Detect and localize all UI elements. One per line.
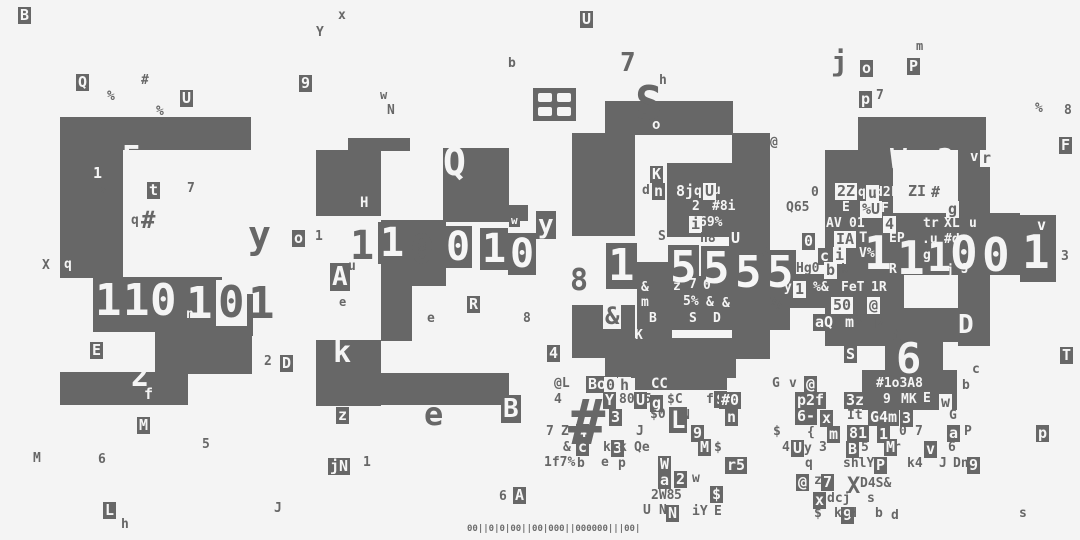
noise-char: 2	[692, 200, 700, 213]
noise-char: u	[713, 184, 721, 197]
big-digit-block-5	[155, 330, 252, 374]
noise-char: K	[650, 166, 663, 183]
noise-char: 01	[849, 217, 865, 230]
noise-char: z	[336, 407, 349, 424]
noise-char: &	[641, 281, 649, 294]
noise-char: 6	[499, 490, 507, 503]
noise-char: #	[762, 247, 770, 260]
noise-char: d	[642, 184, 650, 197]
noise-char: 2W8	[651, 489, 674, 502]
noise-char: j	[831, 48, 848, 76]
noise-char: q	[858, 186, 866, 199]
noise-char: It	[847, 409, 863, 422]
big-digit-block-2	[316, 150, 381, 216]
noise-char: tr	[923, 217, 939, 230]
noise-char: FeT	[841, 281, 864, 294]
noise-char: w	[509, 214, 520, 227]
noise-char: 9	[299, 75, 312, 92]
noise-char: o	[292, 230, 305, 247]
noise-char: Q	[76, 74, 89, 91]
noise-char: k	[841, 263, 849, 276]
big-digit-block-2	[316, 373, 509, 405]
noise-char: 5%	[683, 295, 699, 308]
noise-char: J	[274, 502, 282, 515]
noise-char: r	[893, 441, 901, 454]
noise-char: N	[682, 409, 690, 422]
big-digit-block-8	[732, 133, 770, 243]
noise-char: 1	[248, 282, 275, 326]
noise-char: 0	[150, 279, 177, 323]
window-pane	[538, 107, 552, 116]
noise-char: 8	[1064, 104, 1072, 117]
noise-char: E	[714, 505, 722, 518]
noise-char: U	[180, 90, 193, 107]
noise-char: 0	[216, 280, 247, 326]
noise-char: #8i	[712, 200, 735, 213]
noise-char: 3z	[844, 392, 866, 409]
noise-char: 2	[674, 471, 687, 488]
noise-char: p	[618, 457, 626, 470]
noise-char: w	[692, 472, 700, 485]
noise-char: y	[804, 442, 812, 455]
big-digit-block-5	[60, 117, 123, 278]
noise-char: A	[513, 487, 526, 504]
noise-char: W	[890, 145, 907, 173]
noise-char: b	[508, 57, 516, 70]
noise-char: m	[827, 426, 840, 443]
noise-char: e	[427, 312, 435, 325]
noise-char: m	[916, 40, 923, 52]
noise-char: S	[844, 346, 857, 363]
noise-char: A	[330, 263, 350, 291]
noise-char: G4m	[868, 409, 899, 426]
noise-char: 3	[937, 145, 954, 173]
noise-char: F	[122, 143, 140, 173]
noise-char: 4	[782, 441, 790, 454]
noise-char: $	[773, 425, 781, 438]
noise-char: y	[536, 211, 556, 239]
noise-char: G	[949, 409, 957, 422]
noise-char: #	[141, 208, 155, 232]
noise-char: p	[859, 91, 872, 108]
noise-char: h	[121, 518, 129, 531]
noise-char: 0	[703, 279, 711, 292]
noise-char: s	[867, 492, 875, 505]
noise-char: $0	[650, 408, 666, 421]
noise-char: b	[824, 262, 837, 279]
noise-char: 80	[619, 393, 635, 406]
noise-char: c	[972, 363, 980, 376]
noise-char: G	[772, 377, 780, 390]
noise-char: 1	[927, 238, 951, 278]
big-digit-block-0	[858, 117, 986, 150]
noise-char: K	[635, 329, 643, 342]
noise-char: AV	[826, 217, 842, 230]
noise-char: E	[90, 342, 103, 359]
noise-char: 4	[547, 345, 560, 362]
noise-char: v	[970, 150, 978, 164]
noise-char: 1	[480, 228, 508, 270]
window-pane	[557, 93, 571, 102]
noise-char: 2	[264, 355, 272, 368]
noise-char: U	[643, 504, 651, 517]
noise-char: v	[924, 441, 937, 458]
noise-char: %	[107, 90, 115, 103]
noise-char: S	[658, 230, 666, 243]
noise-char: J	[939, 457, 947, 470]
noise-char: 69%	[699, 216, 722, 229]
noise-char: M	[137, 417, 150, 434]
noise-char: Y	[316, 26, 324, 39]
noise-char: 6	[896, 338, 921, 380]
noise-char: r	[980, 150, 993, 167]
noise-char: 4	[554, 393, 562, 406]
noise-char: f	[706, 393, 714, 406]
noise-char: 2Z	[835, 183, 857, 200]
noise-char: 9	[967, 457, 980, 474]
noise-char: 1	[939, 185, 947, 198]
noise-char: R	[467, 296, 480, 313]
noise-char: Q	[443, 143, 466, 181]
noise-char: 6	[854, 315, 862, 328]
noise-char: MK	[901, 393, 917, 406]
noise-char: t	[147, 182, 160, 199]
big-digit-block-8	[635, 372, 727, 390]
noise-char: N	[387, 104, 395, 117]
noise-char: P	[964, 425, 972, 438]
noise-char: 1	[606, 243, 637, 289]
noise-char: #0	[719, 392, 741, 409]
noise-char: 1	[897, 235, 925, 281]
noise-char: $C	[667, 393, 683, 406]
noise-char: n	[725, 409, 738, 426]
noise-char: @	[867, 297, 880, 314]
noise-char: 0	[410, 230, 434, 270]
noise-char: 0	[982, 232, 1010, 278]
noise-char: &	[603, 303, 621, 329]
noise-char: 7	[876, 89, 884, 102]
noise-char: k	[333, 338, 351, 368]
noise-char: 1	[95, 279, 122, 323]
noise-char: 5	[202, 438, 210, 451]
noise-char: CC	[651, 377, 668, 391]
noise-char: 3	[1061, 250, 1069, 263]
noise-char: aQ	[813, 314, 835, 331]
big-digit-block-8	[605, 101, 733, 135]
big-digit-block-8	[572, 133, 635, 236]
noise-char: 7	[821, 474, 834, 491]
noise-char: $	[714, 441, 722, 454]
noise-char: 5	[674, 489, 682, 502]
noise-char: @	[770, 136, 778, 149]
noise-char: S	[689, 312, 697, 325]
noise-char: F	[881, 202, 889, 215]
noise-char: a	[774, 299, 782, 312]
noise-char: z	[673, 280, 681, 293]
noise-char: M	[835, 314, 843, 327]
noise-char: f	[144, 387, 153, 402]
noise-char: Qe	[634, 441, 650, 454]
noise-char: 3	[819, 441, 827, 454]
noise-char: U	[729, 230, 742, 247]
window-pane	[557, 107, 571, 116]
noise-char: B	[501, 395, 521, 423]
noise-char: n	[186, 308, 194, 321]
noise-char: D	[958, 312, 974, 338]
noise-char: o	[860, 60, 873, 77]
noise-char: a	[658, 472, 671, 489]
noise-char: o	[652, 118, 660, 132]
noise-char: F	[1059, 137, 1072, 154]
noise-char: E	[842, 201, 850, 214]
noise-char: U	[791, 440, 804, 457]
noise-char: r5	[725, 457, 747, 474]
noise-char: y	[248, 216, 271, 254]
noise-char: Q65	[786, 201, 809, 214]
window-grid-icon	[533, 88, 576, 121]
captcha-noise-canvas: 00||0|0|00||00|000||000000|||00| BxYUQ#%…	[0, 0, 1080, 540]
noise-char: $	[814, 507, 822, 520]
noise-char: B	[18, 7, 31, 24]
noise-char: 9	[883, 393, 891, 406]
noise-char: 0	[950, 230, 978, 276]
noise-char: k	[619, 441, 627, 454]
noise-char: jN	[328, 458, 350, 475]
noise-char: @	[796, 474, 809, 491]
noise-char: 0	[802, 233, 815, 250]
noise-char: #	[568, 392, 605, 454]
noise-char: 1	[91, 165, 104, 182]
noise-char: E	[923, 392, 931, 405]
noise-char: &	[722, 297, 730, 310]
noise-char: 1	[350, 226, 374, 266]
noise-char: 0	[899, 425, 907, 438]
noise-char: &	[706, 296, 714, 309]
noise-char: 1	[123, 279, 150, 323]
noise-char: #1o3A8	[876, 377, 923, 390]
noise-char: L	[103, 502, 116, 519]
noise-char: 6	[98, 453, 106, 466]
noise-char: 1	[363, 456, 371, 469]
noise-char: H	[360, 196, 368, 210]
barcode-strip: 00||0|0|00||00|000||000000|||00|	[467, 524, 640, 534]
noise-char: 0	[508, 233, 536, 275]
big-digit-block-5	[60, 372, 188, 405]
window-pane	[538, 93, 552, 102]
noise-char: M	[698, 439, 711, 456]
noise-char: p	[875, 315, 883, 328]
noise-char: 3	[609, 409, 622, 426]
noise-char: q	[694, 185, 702, 198]
noise-char: m	[641, 296, 649, 309]
noise-char: s	[1019, 507, 1027, 520]
noise-char: 7	[689, 278, 697, 291]
noise-char: e	[424, 398, 443, 430]
noise-char: d	[891, 509, 899, 522]
noise-char: 7	[620, 50, 636, 76]
noise-char: 1	[315, 230, 323, 243]
noise-char: X	[42, 259, 50, 272]
noise-char: F	[891, 186, 899, 199]
noise-char: D	[713, 312, 721, 325]
noise-char: v	[789, 377, 797, 390]
noise-char: D4S&	[860, 477, 891, 490]
noise-char: Hg0	[796, 262, 819, 275]
noise-char: T	[1060, 347, 1073, 364]
noise-char: 5	[733, 250, 764, 296]
noise-char: H	[849, 507, 857, 520]
noise-char: d2	[875, 186, 891, 199]
noise-char: y	[784, 281, 792, 294]
noise-char: U	[580, 11, 593, 28]
noise-char: 1R	[871, 281, 887, 294]
noise-char: 0	[444, 226, 472, 268]
noise-char: z	[100, 184, 108, 197]
noise-char: w	[380, 89, 387, 101]
noise-char: P	[907, 58, 920, 75]
noise-char: e	[339, 296, 346, 308]
noise-char: v	[897, 203, 905, 216]
noise-char: D	[280, 355, 293, 372]
noise-char: b	[875, 507, 883, 520]
noise-char: q	[805, 457, 813, 470]
noise-char: 8	[570, 266, 588, 296]
noise-char: iY	[692, 505, 708, 518]
noise-char: {	[807, 426, 815, 439]
noise-char: n	[652, 183, 665, 200]
noise-char: 1	[793, 281, 806, 298]
noise-char: p	[1036, 425, 1049, 442]
big-digit-block-2	[381, 284, 412, 341]
noise-char: B	[649, 312, 657, 325]
noise-char: ZI	[906, 183, 928, 200]
noise-char: J	[636, 425, 644, 438]
noise-char: %&	[813, 281, 829, 294]
noise-char: %	[1035, 102, 1043, 115]
noise-char: 1	[864, 230, 892, 276]
noise-char: 1	[1022, 229, 1050, 275]
noise-char: 50	[831, 297, 853, 314]
noise-char: 6-	[795, 408, 817, 425]
noise-char: 7	[187, 182, 195, 195]
noise-char: 7	[546, 425, 554, 438]
noise-char: 8j	[676, 184, 694, 199]
noise-char: dcj	[827, 492, 850, 505]
noise-char: $	[710, 486, 723, 503]
noise-char: 7	[915, 425, 923, 438]
noise-char: 6	[948, 441, 956, 454]
noise-char: b	[962, 379, 970, 392]
noise-char: 1	[378, 222, 406, 264]
noise-char: P	[874, 457, 887, 474]
noise-char: 0	[811, 186, 819, 199]
noise-char: q	[131, 214, 139, 227]
noise-char: 5	[861, 441, 869, 454]
noise-char: 8	[523, 312, 531, 325]
noise-char: x	[338, 9, 346, 22]
noise-char: k4	[907, 457, 923, 470]
noise-char: M	[33, 452, 41, 465]
noise-char: #	[141, 74, 149, 87]
noise-char: q	[64, 258, 72, 271]
noise-char: N	[666, 505, 679, 522]
noise-char: %	[156, 105, 164, 118]
